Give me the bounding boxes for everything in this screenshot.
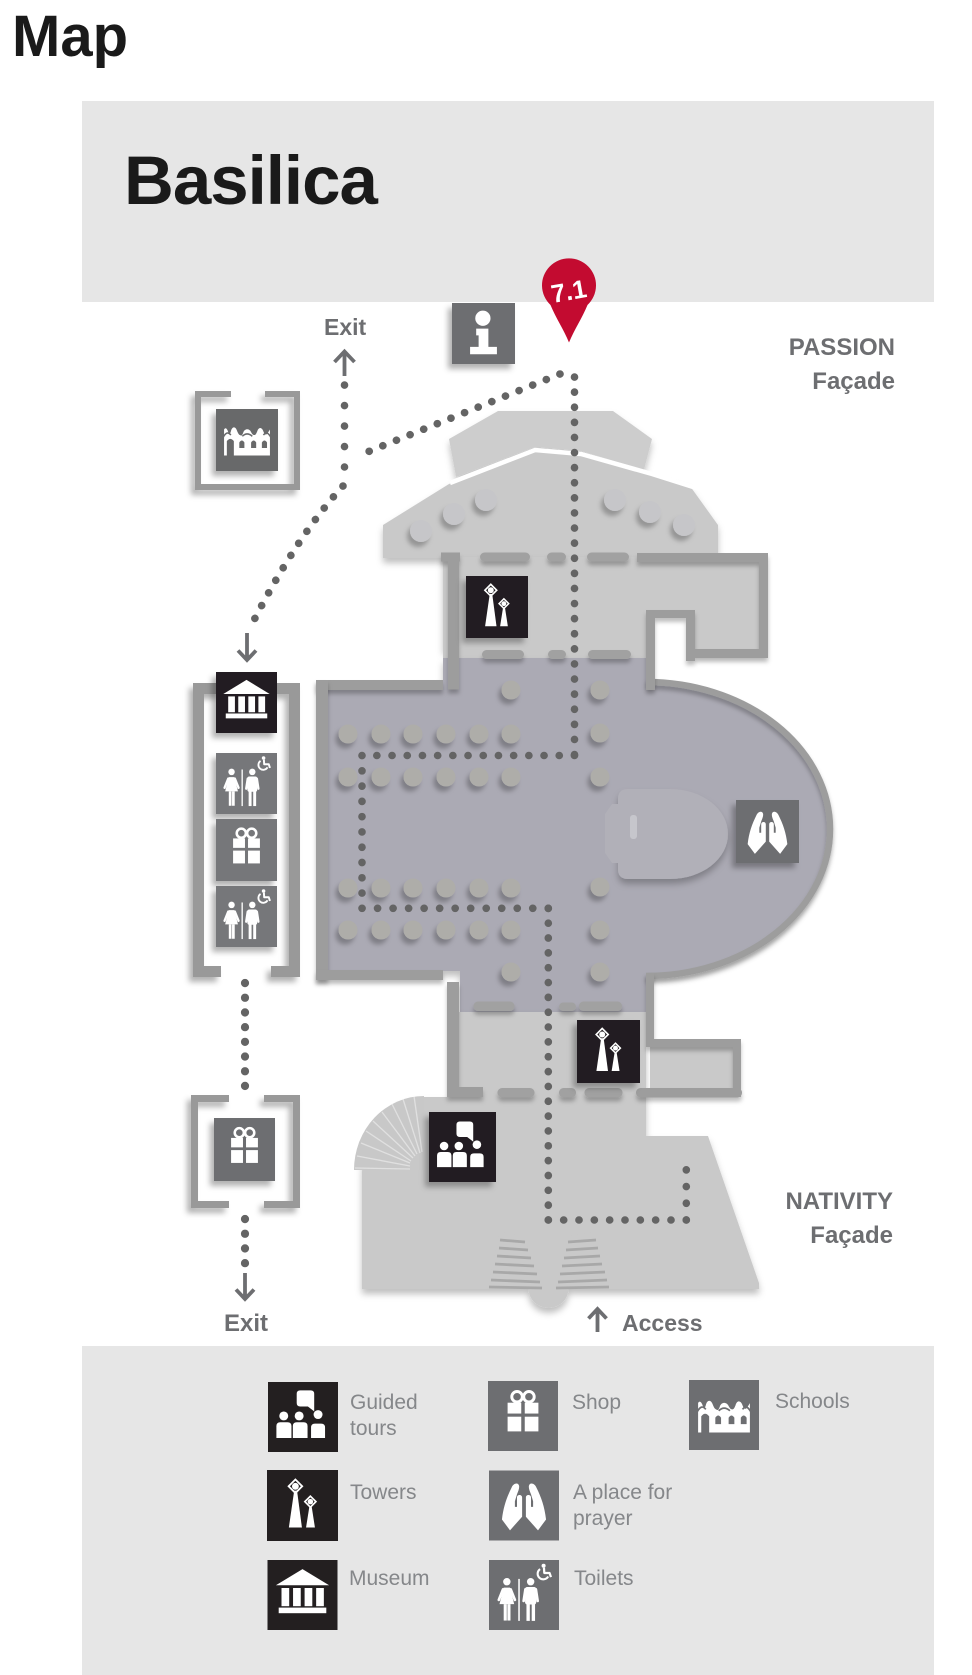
svg-text:Façade: Façade (812, 368, 895, 395)
svg-text:PASSION: PASSION (789, 334, 895, 361)
svg-text:Exit: Exit (224, 1310, 268, 1337)
svg-text:Façade: Façade (810, 1222, 893, 1249)
svg-text:Access: Access (622, 1310, 703, 1336)
svg-text:Exit: Exit (324, 314, 367, 340)
svg-text:NATIVITY: NATIVITY (785, 1188, 893, 1215)
